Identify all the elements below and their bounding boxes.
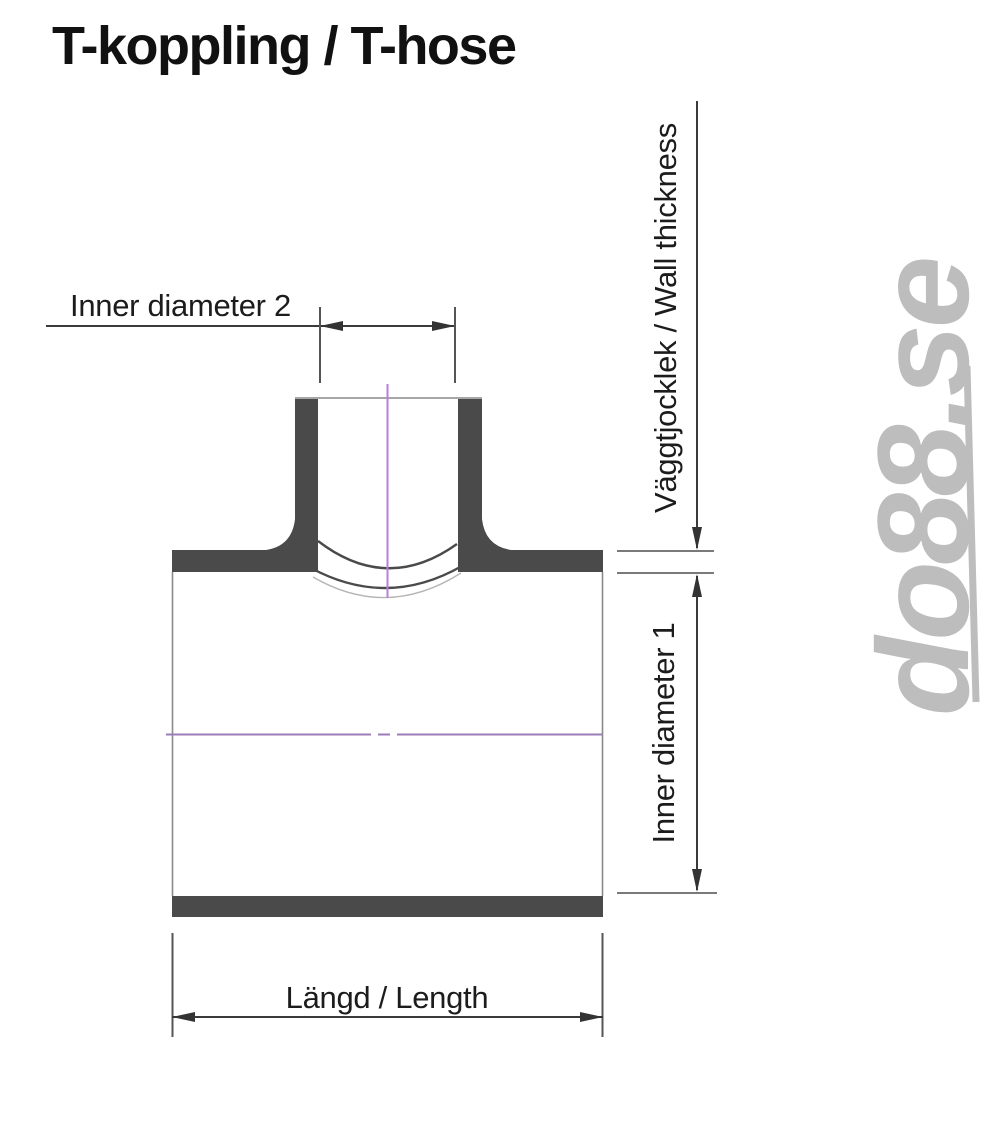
arrow-left-icon	[172, 1012, 195, 1022]
inner-diameter-1-label: Inner diameter 1	[646, 623, 681, 844]
left-wall-and-flange	[172, 399, 318, 572]
arrow-right-icon	[432, 321, 455, 331]
t-coupling-diagram: do88.se T-koppling / T-hose Inner diamet…	[0, 0, 1000, 1137]
watermark-group: do88.se	[850, 259, 996, 716]
wall-thickness-label: Väggtjocklek / Wall thickness	[648, 123, 683, 513]
dimension-wall-thickness: Väggtjocklek / Wall thickness	[617, 101, 714, 573]
right-wall-and-flange	[458, 399, 603, 572]
inner-diameter-2-label: Inner diameter 2	[70, 288, 291, 323]
dimension-inner-diameter-1: Inner diameter 1	[617, 574, 717, 893]
length-label: Längd / Length	[286, 980, 489, 1015]
arrow-down-icon	[692, 869, 702, 892]
arrow-up-icon	[692, 574, 702, 597]
dimension-inner-diameter-2: Inner diameter 2	[46, 288, 455, 383]
bottom-wall-band	[172, 896, 603, 917]
arrow-down-icon	[692, 527, 702, 550]
page-title: T-koppling / T-hose	[52, 16, 516, 76]
arrow-right-icon	[580, 1012, 603, 1022]
dimension-length: Längd / Length	[172, 933, 603, 1037]
arrow-left-icon	[320, 321, 343, 331]
technical-drawing-page: do88.se T-koppling / T-hose Inner diamet…	[0, 0, 1000, 1137]
